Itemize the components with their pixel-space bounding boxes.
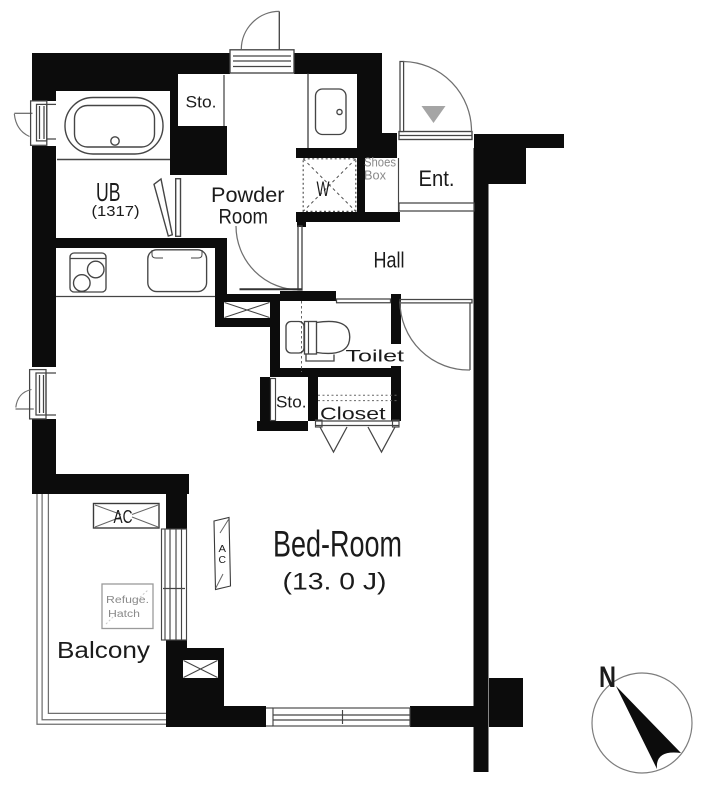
svg-text:UB: UB	[96, 177, 121, 207]
svg-text:Bed-Room: Bed-Room	[273, 524, 402, 565]
svg-text:Box: Box	[364, 169, 387, 183]
svg-text:Refuge.: Refuge.	[106, 595, 149, 606]
svg-text:A: A	[219, 544, 227, 555]
svg-text:Hatch: Hatch	[108, 609, 140, 620]
svg-text:N: N	[599, 661, 616, 694]
svg-text:Shoes: Shoes	[364, 156, 396, 170]
svg-text:Balcony: Balcony	[57, 637, 151, 663]
svg-text:Powder: Powder	[211, 183, 285, 207]
svg-text:W: W	[317, 178, 330, 201]
svg-text:Ent.: Ent.	[419, 166, 455, 191]
svg-text:AC: AC	[114, 507, 133, 527]
svg-text:Room: Room	[219, 205, 269, 229]
svg-text:Closet: Closet	[320, 404, 386, 424]
svg-text:Hall: Hall	[374, 248, 405, 273]
svg-text:Sto.: Sto.	[276, 393, 307, 412]
svg-text:(13. 0 J): (13. 0 J)	[283, 569, 387, 596]
svg-text:C: C	[219, 555, 227, 566]
svg-text:Toilet: Toilet	[346, 347, 405, 366]
svg-text:Sto.: Sto.	[186, 93, 217, 112]
svg-text:(1317): (1317)	[92, 204, 140, 220]
